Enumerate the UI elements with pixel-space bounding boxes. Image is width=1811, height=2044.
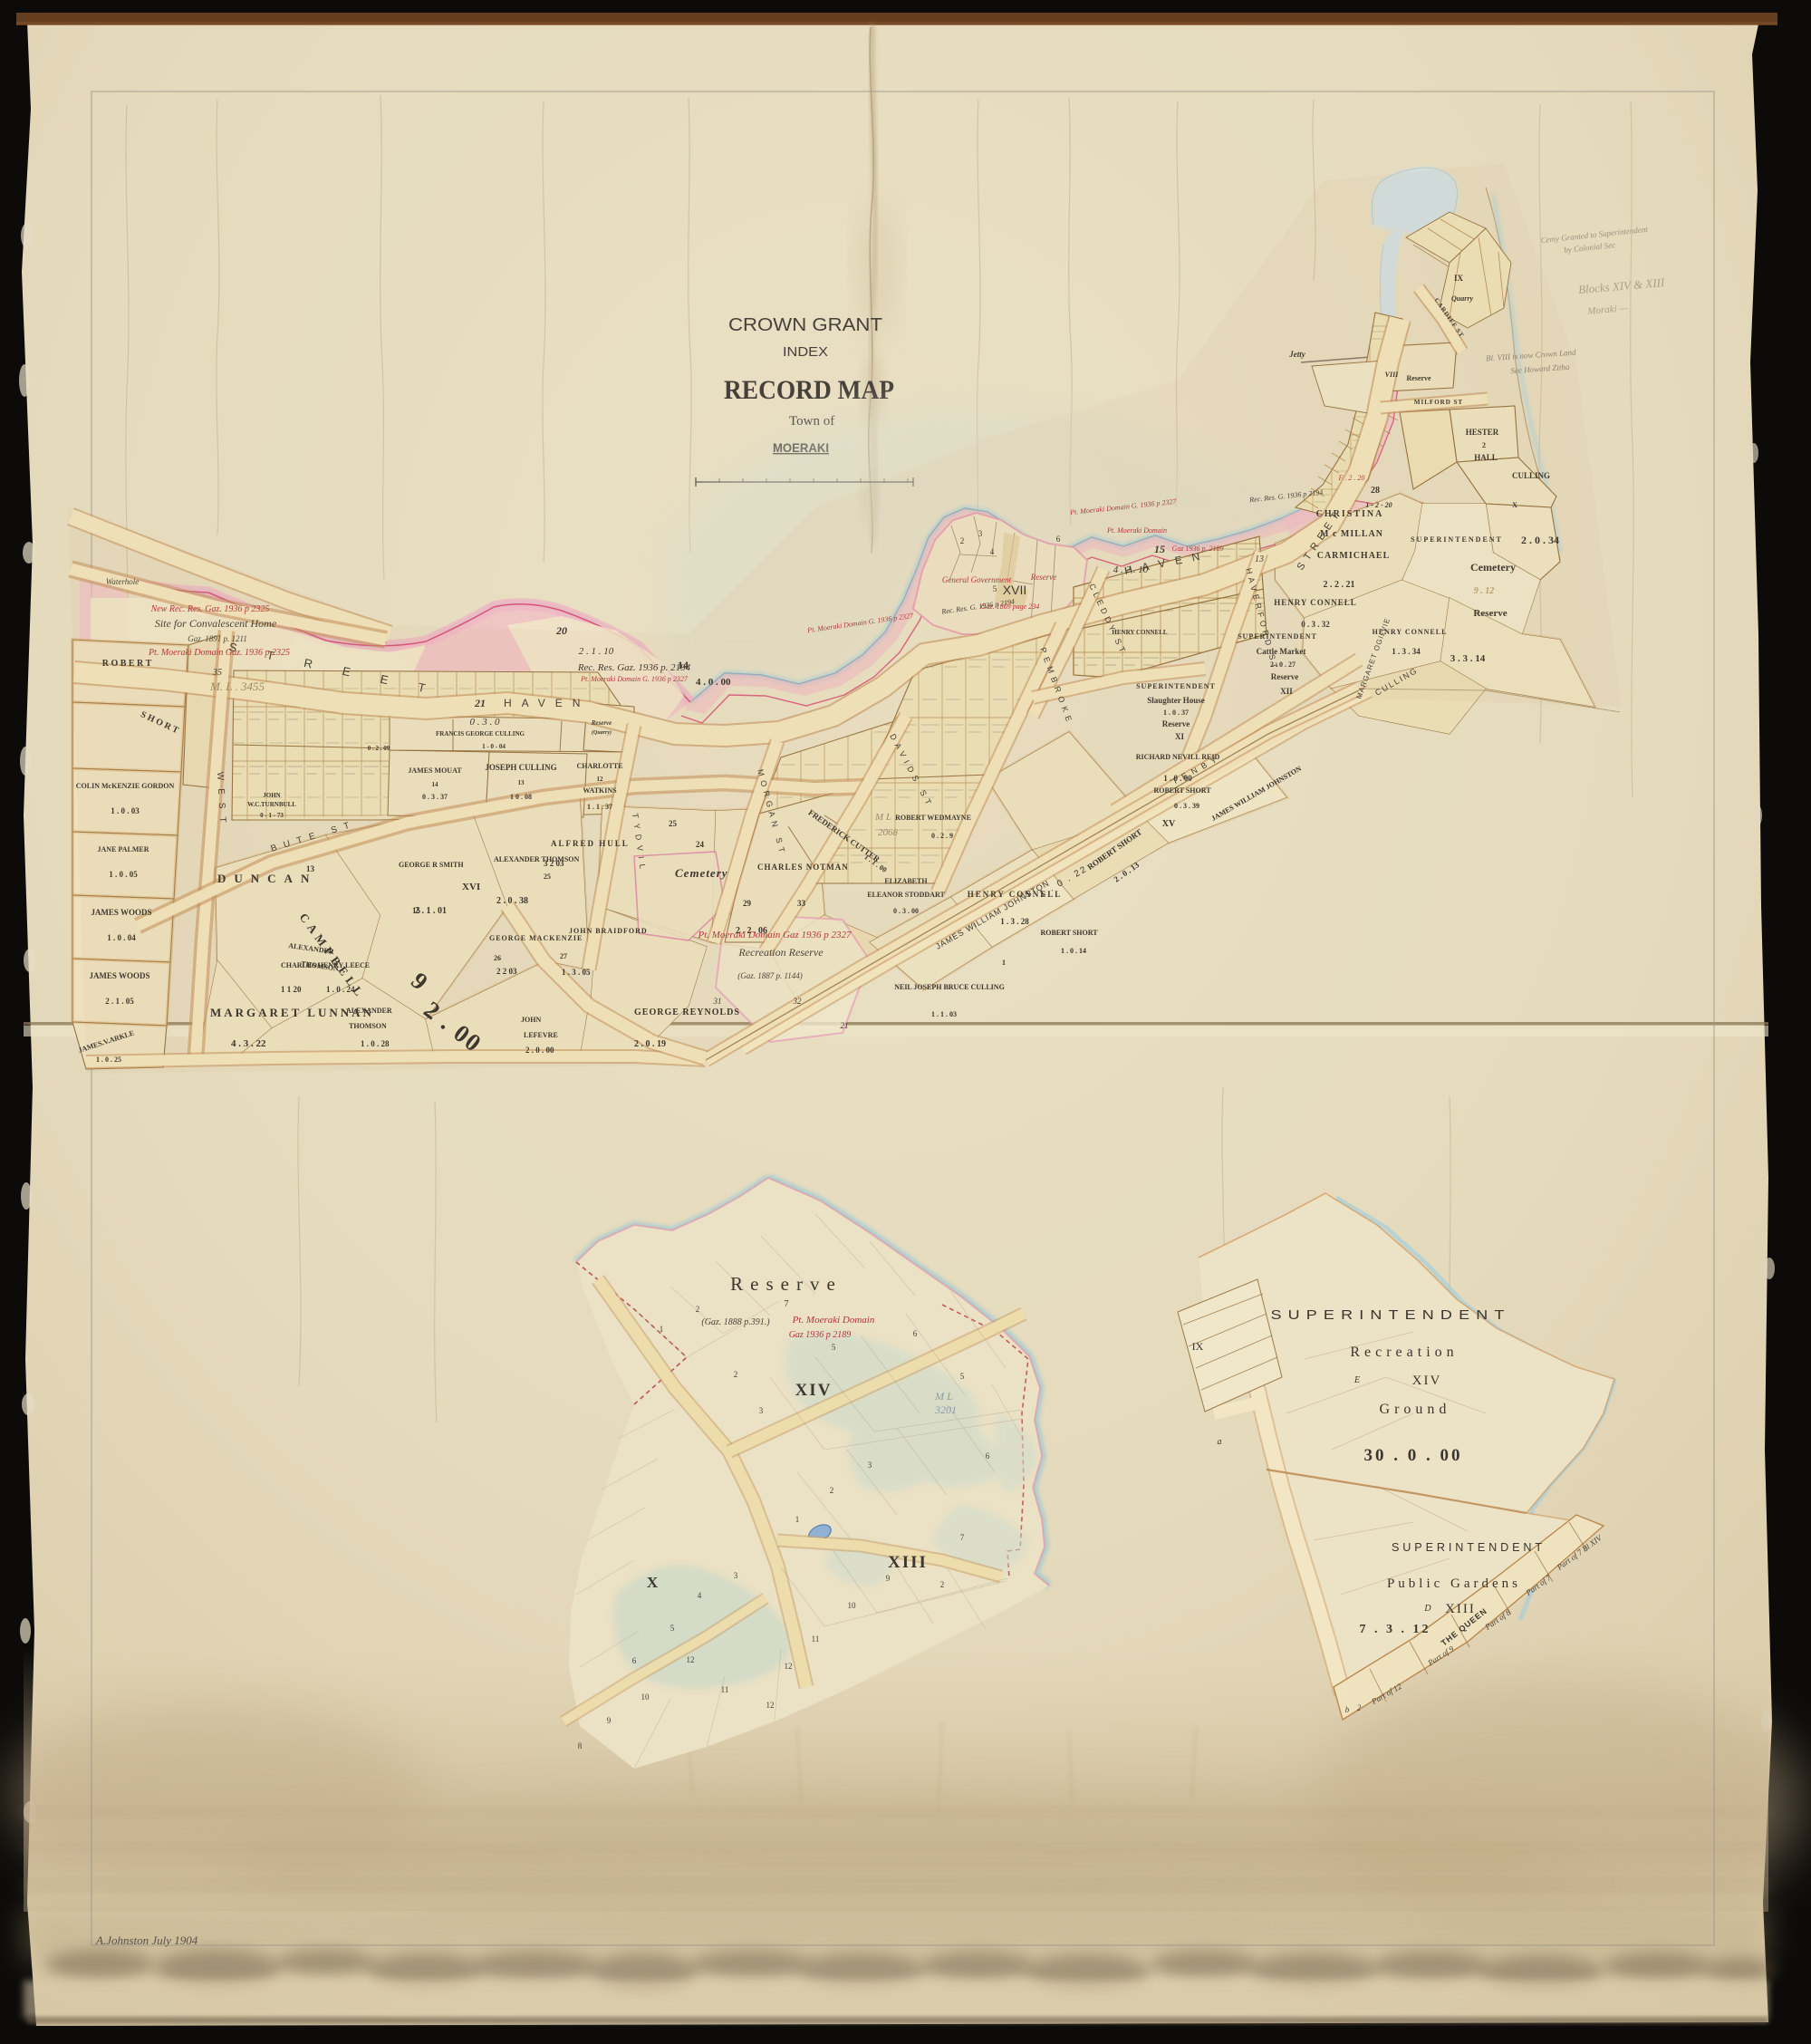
svg-text:3201: 3201 (934, 1403, 957, 1416)
svg-text:XV: XV (1162, 819, 1176, 829)
svg-text:SUPERINTENDENT: SUPERINTENDENT (1392, 1540, 1546, 1554)
svg-text:4: 4 (698, 1591, 702, 1600)
svg-text:A.Johnston July 1904: A.Johnston July 1904 (95, 1933, 198, 1947)
svg-text:3: 3 (759, 1406, 764, 1415)
svg-text:a: a (1218, 1437, 1222, 1447)
svg-text:b: b (1345, 1705, 1350, 1714)
svg-text:1: 1 (795, 1515, 800, 1524)
svg-text:12: 12 (766, 1701, 775, 1710)
svg-text:21: 21 (841, 1021, 849, 1030)
svg-text:10: 10 (848, 1601, 857, 1610)
svg-text:12: 12 (687, 1655, 695, 1664)
svg-text:2: 2 (696, 1305, 700, 1314)
svg-text:D: D (1423, 1604, 1431, 1614)
svg-text:0 . 3 . 39: 0 . 3 . 39 (1174, 802, 1199, 810)
svg-text:NEIL JOSEPH BRUCE CULLING: NEIL JOSEPH BRUCE CULLING (894, 983, 1005, 991)
svg-text:Reserve: Reserve (730, 1273, 843, 1295)
svg-text:X: X (647, 1574, 659, 1591)
svg-text:7: 7 (785, 1299, 789, 1309)
svg-text:1: 1 (660, 1325, 664, 1334)
svg-text:7: 7 (960, 1533, 965, 1542)
svg-text:2: 2 (1357, 1703, 1362, 1712)
svg-text:1 . 0 . 14: 1 . 0 . 14 (1061, 947, 1086, 955)
svg-text:11: 11 (721, 1685, 729, 1694)
svg-text:M L: M L (934, 1390, 953, 1403)
svg-text:INDEX: INDEX (783, 344, 828, 360)
svg-text:5: 5 (670, 1624, 675, 1633)
svg-text:Ground: Ground (1380, 1402, 1451, 1417)
svg-text:XIV: XIV (795, 1381, 833, 1400)
svg-text:ROBERT SHORT: ROBERT SHORT (1040, 929, 1098, 937)
svg-text:CROWN GRANT: CROWN GRANT (728, 315, 882, 335)
svg-text:3: 3 (868, 1461, 872, 1470)
svg-text:E: E (1353, 1375, 1360, 1385)
svg-text:(Gaz. 1888 p.391.): (Gaz. 1888 p.391.) (701, 1317, 770, 1327)
svg-text:8: 8 (578, 1741, 583, 1750)
svg-text:2: 2 (734, 1370, 738, 1379)
svg-text:5: 5 (960, 1372, 965, 1381)
svg-text:12: 12 (785, 1662, 793, 1671)
svg-text:XIII: XIII (1445, 1602, 1476, 1616)
svg-text:9: 9 (607, 1716, 612, 1725)
svg-text:6: 6 (913, 1329, 918, 1338)
svg-text:1: 1 (1002, 959, 1006, 967)
svg-text:2: 2 (940, 1580, 945, 1589)
svg-text:30 . 0 . 00: 30 . 0 . 00 (1364, 1446, 1463, 1465)
svg-text:7 . 3 . 12: 7 . 3 . 12 (1360, 1623, 1431, 1636)
svg-text:3: 3 (734, 1571, 738, 1580)
svg-text:XIV: XIV (1412, 1374, 1442, 1388)
svg-text:SUPERINTENDENT: SUPERINTENDENT (1271, 1307, 1511, 1323)
svg-text:IX: IX (1192, 1340, 1204, 1353)
svg-text:Recreation: Recreation (1350, 1345, 1458, 1360)
svg-text:Public Gardens: Public Gardens (1387, 1576, 1521, 1591)
svg-text:1 . 3 . 28: 1 . 3 . 28 (1000, 917, 1029, 926)
svg-text:Pt. Moeraki Domain: Pt. Moeraki Domain (792, 1315, 875, 1326)
svg-text:6: 6 (986, 1451, 990, 1461)
svg-text:Gaz 1936 p 2189: Gaz 1936 p 2189 (789, 1330, 852, 1340)
svg-text:11: 11 (812, 1634, 820, 1644)
svg-text:XIII: XIII (888, 1553, 928, 1572)
svg-text:RECORD MAP: RECORD MAP (724, 375, 894, 405)
svg-text:9: 9 (886, 1574, 891, 1583)
svg-text:10: 10 (641, 1692, 650, 1702)
svg-text:1 . 1 . 03: 1 . 1 . 03 (931, 1010, 957, 1018)
svg-text:2: 2 (830, 1486, 834, 1495)
svg-text:5: 5 (832, 1343, 836, 1352)
svg-text:6: 6 (632, 1656, 637, 1665)
